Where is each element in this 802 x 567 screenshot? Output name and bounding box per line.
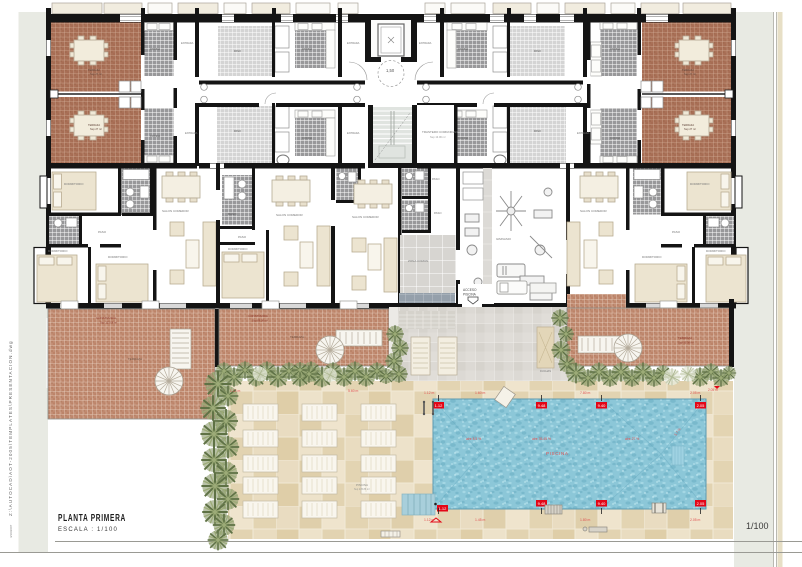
svg-text:1.12 m: 1.12 m bbox=[424, 391, 435, 395]
svg-text:1,50: 1,50 bbox=[386, 68, 395, 73]
svg-text:1.12: 1.12 bbox=[435, 403, 444, 408]
svg-text:GIMNASIO: GIMNASIO bbox=[496, 237, 512, 241]
svg-text:ENTRADA: ENTRADA bbox=[577, 131, 590, 135]
svg-text:PASO: PASO bbox=[234, 49, 241, 53]
svg-text:PASO: PASO bbox=[534, 49, 541, 53]
svg-text:ENTRADA: ENTRADA bbox=[185, 131, 198, 135]
svg-text:COCINA: COCINA bbox=[610, 47, 620, 51]
svg-text:TERRAZA: TERRAZA bbox=[88, 123, 100, 127]
svg-text:2.05: 2.05 bbox=[697, 501, 706, 506]
svg-text:Sup 27 m²: Sup 27 m² bbox=[90, 72, 102, 76]
svg-text:1.12 m: 1.12 m bbox=[424, 518, 435, 522]
svg-text:COCINA: COCINA bbox=[458, 47, 468, 51]
svg-text:TERRAZA: TERRAZA bbox=[678, 336, 692, 340]
svg-text:PISCINA: PISCINA bbox=[356, 483, 368, 487]
svg-text:DUCHAS: DUCHAS bbox=[540, 369, 551, 373]
svg-text:9.48: 9.48 bbox=[538, 403, 547, 408]
svg-text:PISCINA: PISCINA bbox=[463, 293, 477, 297]
svg-text:DORMITORIO: DORMITORIO bbox=[706, 249, 726, 253]
svg-text:Sup 95.08 m²: Sup 95.08 m² bbox=[678, 341, 694, 345]
svg-text:DORMITORIO: DORMITORIO bbox=[108, 255, 128, 259]
svg-text:TERRAZA: TERRAZA bbox=[682, 68, 694, 72]
svg-text:BAÑO: BAÑO bbox=[228, 211, 237, 216]
svg-text:alre 8.5 %: alre 8.5 % bbox=[466, 437, 481, 441]
svg-text:TERRAZA: TERRAZA bbox=[290, 335, 304, 339]
svg-text:COCINA: COCINA bbox=[610, 136, 620, 140]
svg-text:Sup 245.86 m²: Sup 245.86 m² bbox=[354, 488, 370, 491]
svg-text:Sup 13.96 m²: Sup 13.96 m² bbox=[430, 135, 446, 139]
svg-text:1.60 m: 1.60 m bbox=[475, 391, 486, 395]
svg-text:ZONA COMUN: ZONA COMUN bbox=[408, 259, 428, 263]
svg-text:2.05: 2.05 bbox=[697, 403, 706, 408]
svg-text:9.40: 9.40 bbox=[598, 501, 607, 506]
svg-text:Z:\AUTOCAD\AOT-2005\TEMPLATES\: Z:\AUTOCAD\AOT-2005\TEMPLATES\PRESENTACI… bbox=[8, 340, 13, 516]
svg-text:1.12: 1.12 bbox=[439, 506, 448, 511]
svg-text:CONSTRUIDA: CONSTRUIDA bbox=[96, 316, 116, 320]
svg-text:Sup 27 m²: Sup 27 m² bbox=[90, 127, 102, 131]
svg-text:1.12 m: 1.12 m bbox=[230, 389, 241, 393]
svg-text:ENTRADA: ENTRADA bbox=[181, 41, 194, 45]
svg-text:PASO: PASO bbox=[98, 230, 107, 234]
svg-text:SALON COMEDOR: SALON COMEDOR bbox=[162, 209, 190, 213]
svg-text:DORMITORIO: DORMITORIO bbox=[48, 249, 68, 253]
svg-text:alre 27 %: alre 27 % bbox=[625, 437, 639, 441]
svg-text:SALON COMEDOR: SALON COMEDOR bbox=[276, 213, 304, 217]
svg-text:ACCESO: ACCESO bbox=[463, 288, 477, 292]
svg-text:9.40: 9.40 bbox=[598, 403, 607, 408]
svg-text:5.60 m: 5.60 m bbox=[348, 389, 359, 393]
svg-text:COCINA: COCINA bbox=[150, 134, 160, 138]
svg-text:2.05 m: 2.05 m bbox=[708, 388, 718, 392]
svg-text:DORMITORIO: DORMITORIO bbox=[228, 247, 248, 251]
svg-text:TRASTERO COMUNIDAD: TRASTERO COMUNIDAD bbox=[422, 130, 459, 134]
svg-text:DORMITORIO: DORMITORIO bbox=[64, 182, 84, 186]
svg-text:DORMITORIO: DORMITORIO bbox=[690, 182, 710, 186]
svg-text:SALON COMEDOR: SALON COMEDOR bbox=[580, 209, 608, 213]
svg-text:PASO: PASO bbox=[534, 129, 541, 133]
svg-text:2.05 m: 2.05 m bbox=[690, 518, 701, 522]
svg-text:TERRAZA: TERRAZA bbox=[682, 123, 694, 127]
svg-text:COCINA: COCINA bbox=[150, 47, 160, 51]
svg-text:1.45 m: 1.45 m bbox=[475, 518, 486, 522]
svg-text:2.05 m: 2.05 m bbox=[690, 391, 701, 395]
svg-text:TERRAZA: TERRAZA bbox=[128, 357, 142, 361]
svg-text:PASO: PASO bbox=[672, 230, 681, 234]
svg-text:1.80 m: 1.80 m bbox=[580, 518, 591, 522]
svg-text:PASO: PASO bbox=[234, 129, 241, 133]
svg-text:Sup 123.08 m²: Sup 123.08 m² bbox=[100, 321, 117, 325]
svg-text:ESCALA : 1/100: ESCALA : 1/100 bbox=[58, 527, 118, 533]
svg-text:PISCINA: PISCINA bbox=[546, 451, 569, 456]
svg-text:alre 35.45 %: alre 35.45 % bbox=[532, 437, 551, 441]
svg-text:CONSTRUIDA: CONSTRUIDA bbox=[248, 314, 268, 318]
svg-text:4/10/2007: 4/10/2007 bbox=[9, 524, 13, 538]
svg-text:COCINA: COCINA bbox=[302, 47, 312, 51]
svg-text:TERRAZA: TERRAZA bbox=[88, 68, 100, 72]
svg-text:ENTRADA: ENTRADA bbox=[347, 41, 360, 45]
svg-text:DORMITORIO: DORMITORIO bbox=[642, 255, 662, 259]
svg-text:ENTRADA: ENTRADA bbox=[347, 131, 360, 135]
svg-text:Sup 88.08 m²: Sup 88.08 m² bbox=[252, 319, 268, 323]
svg-text:COCINA: COCINA bbox=[302, 136, 312, 140]
svg-text:Sup 27 m²: Sup 27 m² bbox=[684, 72, 696, 76]
svg-text:ENTRADA: ENTRADA bbox=[419, 41, 432, 45]
svg-text:1/100: 1/100 bbox=[746, 521, 769, 531]
svg-text:7.80 m: 7.80 m bbox=[580, 391, 591, 395]
svg-text:PASO: PASO bbox=[238, 235, 247, 239]
svg-text:PLANTA PRIMERA: PLANTA PRIMERA bbox=[58, 512, 126, 524]
svg-text:Sup 27 m²: Sup 27 m² bbox=[684, 127, 696, 131]
svg-text:PASO: PASO bbox=[432, 177, 440, 181]
svg-text:PASO: PASO bbox=[434, 211, 442, 215]
svg-text:COCINA: COCINA bbox=[458, 136, 468, 140]
svg-text:SALON COMEDOR: SALON COMEDOR bbox=[352, 215, 380, 219]
